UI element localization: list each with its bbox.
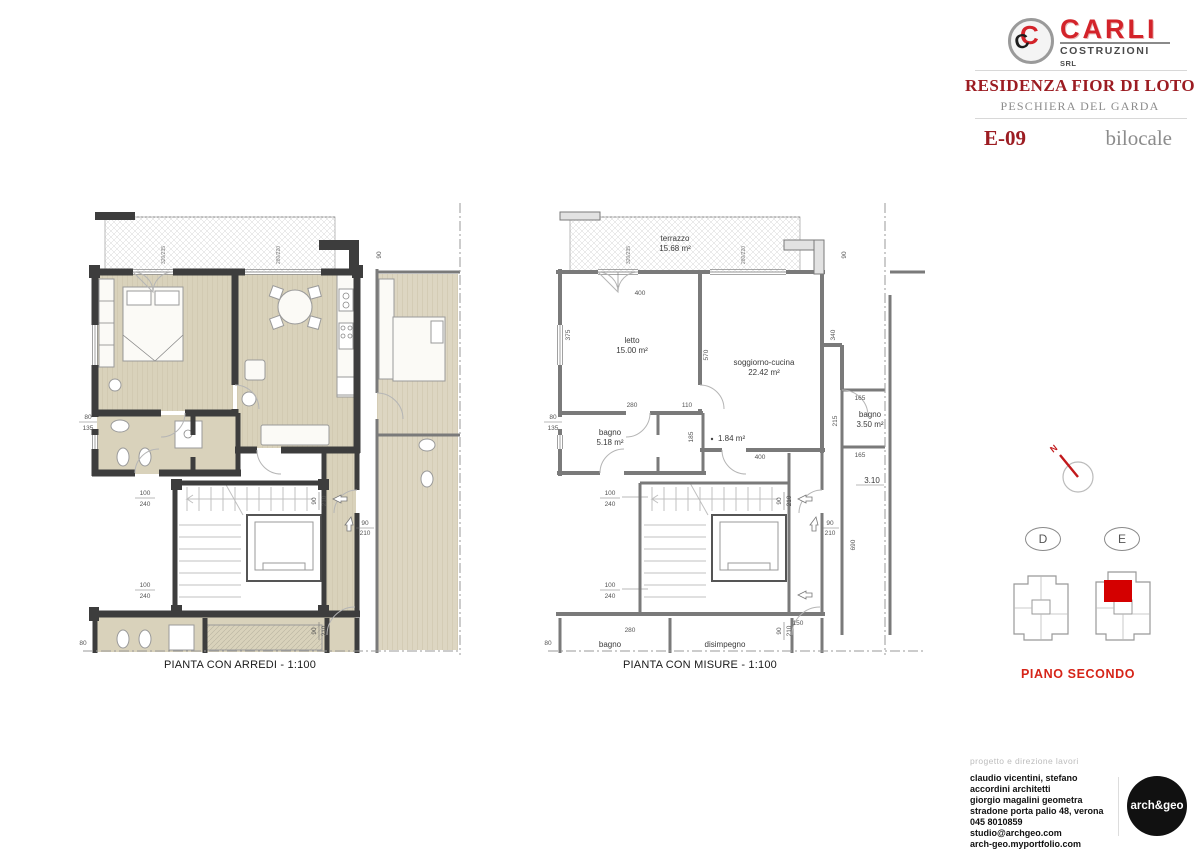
footer-line-surveyor: giorgio magalini geometra (970, 795, 1115, 806)
svg-text:210: 210 (786, 625, 793, 636)
svg-text:210: 210 (825, 530, 836, 537)
svg-text:90: 90 (776, 497, 783, 505)
sofa (261, 425, 329, 445)
brand-name: CARLI (1060, 16, 1170, 42)
svg-text:240: 240 (140, 501, 151, 508)
footer-line-phone: 045 8010859 (970, 817, 1115, 828)
svg-text:240: 240 (605, 593, 616, 600)
svg-text:210: 210 (321, 495, 328, 506)
brand-legal-form: SRL (1060, 59, 1077, 68)
room-bagno2: bagno (859, 410, 882, 419)
project-location: PESCHIERA DEL GARDA (960, 99, 1200, 114)
room-bagno1-area: 5.18 m² (596, 438, 623, 447)
svg-text:80: 80 (549, 414, 557, 421)
studio-logo: arch&geo (1127, 776, 1187, 836)
block-d-badge: D (1025, 527, 1061, 551)
dim-90: 90 (841, 251, 848, 259)
svg-text:240: 240 (140, 593, 151, 600)
floor-plan-arredi: 80 135 100 240 100 240 90 210 90 210 90 … (75, 195, 465, 660)
dim-corridor-h: 185 (688, 431, 695, 442)
misure-dimensions: 400 280 110 185 375 570 400 340 690 215 … (544, 246, 866, 647)
svg-text:100: 100 (140, 490, 151, 497)
svg-text:100: 100 (605, 490, 616, 497)
window-callout-2: 280/220 (276, 246, 282, 264)
window-callout-1: 320/235 (626, 246, 632, 264)
dim-letto-height: 375 (565, 329, 572, 340)
svg-text:210: 210 (321, 625, 328, 636)
dim-bagno2-height: 215 (832, 415, 839, 426)
unit-highlight (1104, 580, 1132, 602)
bed (123, 287, 183, 361)
armchair (245, 360, 265, 380)
svg-text:100: 100 (605, 582, 616, 589)
floor-label: PIANO SECONDO (998, 667, 1158, 681)
dim-top-window: 400 (635, 290, 646, 297)
room-soggiorno: soggiorno-cucina (734, 358, 795, 367)
header-divider-top (975, 70, 1187, 71)
dim-100-240-b: 100 240 (135, 582, 155, 600)
dim-100-240-a: 100 240 (135, 490, 155, 508)
company-logo-icon: C C (1008, 18, 1054, 64)
dim-corridor: 110 (682, 402, 693, 409)
svg-text:210: 210 (360, 530, 371, 537)
footer-line-email: studio@archgeo.com (970, 828, 1115, 839)
block-d-footprint (1008, 568, 1074, 644)
misure-staircase (644, 483, 786, 597)
built-in-wardrobe (207, 625, 322, 650)
footer-line-architects: claudio vicentini, stefano accordini arc… (970, 773, 1115, 795)
svg-text:210: 210 (786, 495, 793, 506)
dim-letto-width: 280 (627, 402, 638, 409)
room-letto: letto (624, 336, 640, 345)
svg-text:135: 135 (548, 425, 559, 432)
project-title: RESIDENZA FIOR DI LOTO (960, 76, 1200, 96)
room-bagno2-area: 3.50 m² (856, 420, 883, 429)
arredi-staircase (179, 483, 321, 597)
pouf (109, 379, 121, 391)
svg-text:240: 240 (605, 501, 616, 508)
dim-right-340: 340 (830, 329, 837, 340)
brand-sub-word: COSTRUZIONI (1060, 45, 1150, 57)
svg-text:135: 135 (83, 425, 94, 432)
window-callout-2: 280/220 (741, 246, 747, 264)
window-callout-1: 320/235 (161, 246, 167, 264)
footer-contact-block: claudio vicentini, stefano accordini arc… (970, 773, 1115, 850)
north-label: N (1048, 443, 1059, 455)
room-bagno3: bagno (599, 640, 622, 649)
floor-plan-misure: terrazzo 15.68 m² letto 15.00 m² soggior… (540, 195, 930, 660)
block-e-label: E (1118, 532, 1126, 546)
room-disimpegno: disimpegno (705, 640, 746, 649)
footer-divider (1118, 777, 1119, 836)
svg-text:90: 90 (361, 520, 369, 527)
dim-165-b: 165 (855, 452, 866, 459)
dim-soggiorno-width: 400 (755, 454, 766, 461)
svg-text:80: 80 (84, 414, 92, 421)
dim-right-690: 690 (850, 539, 857, 550)
company-logo: C C CARLI COSTRUZIONI SRL (1008, 16, 1170, 64)
dim-soggiorno-height: 570 (703, 349, 710, 360)
room-terrazzo: terrazzo (661, 234, 690, 243)
dim-165-a: 165 (855, 395, 866, 402)
dim-90: 90 (376, 251, 383, 259)
dim-90-210-b: 90 210 (821, 520, 839, 537)
room-terrazzo-area: 15.68 m² (659, 244, 691, 253)
block-e-footprint (1090, 566, 1156, 644)
studio-logo-text: arch&geo (1130, 800, 1183, 812)
room-soggiorno-area: 22.42 m² (748, 368, 780, 377)
north-arrow: N (1040, 437, 1116, 509)
company-logo-text: CARLI COSTRUZIONI SRL (1060, 16, 1170, 69)
unit-type: bilocale (1040, 126, 1172, 151)
svg-text:90: 90 (311, 497, 318, 505)
footer-section-label: progetto e direzione lavori (970, 756, 1079, 766)
svg-text:90: 90 (776, 627, 783, 635)
room-letto-area: 15.00 m² (616, 346, 648, 355)
caption-pianta-arredi: PIANTA CON ARREDI - 1:100 (130, 659, 350, 671)
dim-bottom-150: 150 (793, 620, 804, 627)
dim-bottom-280: 280 (625, 627, 636, 634)
dim-80: 80 (544, 640, 552, 647)
dim-80: 80 (79, 640, 87, 647)
unit-code: E-09 (984, 126, 1026, 151)
room-bagno1: bagno (599, 428, 622, 437)
svg-text:90: 90 (826, 520, 834, 527)
room-antibagno-area: 1.84 m² (718, 434, 745, 443)
footer-line-website: arch-geo.myportfolio.com (970, 839, 1115, 850)
svg-text:90: 90 (311, 627, 318, 635)
footer-line-address: stradone porta palio 48, verona (970, 806, 1115, 817)
header-divider-bottom (975, 118, 1187, 119)
level-mark: 3.10 (864, 476, 880, 485)
caption-pianta-misure: PIANTA CON MISURE - 1:100 (590, 659, 810, 671)
svg-text:100: 100 (140, 582, 151, 589)
arredi-terrace (105, 217, 335, 272)
brand-subtitle: COSTRUZIONI SRL (1060, 42, 1170, 69)
block-e-badge: E (1104, 527, 1140, 551)
kitchen-counter (337, 275, 355, 397)
block-d-label: D (1039, 532, 1048, 546)
dim-90-210-c: 90 210 (776, 622, 793, 640)
